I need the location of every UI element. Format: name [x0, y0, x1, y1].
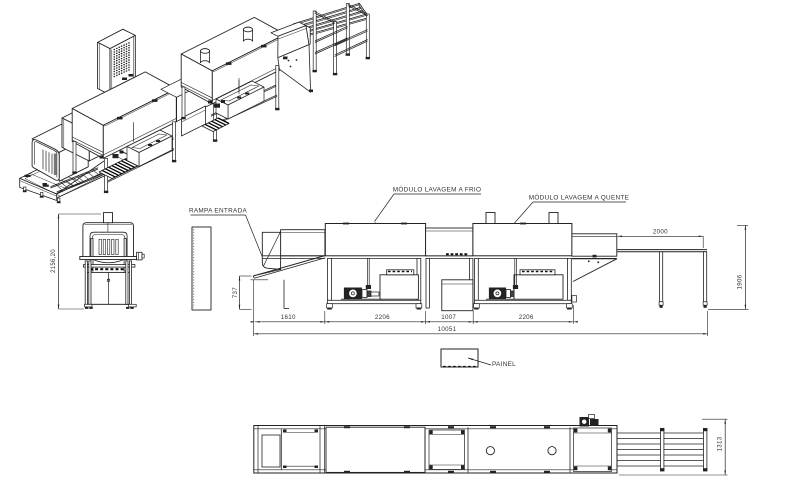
- svg-text:PAINEL: PAINEL: [492, 361, 516, 368]
- svg-text:RAMPA ENTRADA: RAMPA ENTRADA: [189, 208, 248, 215]
- svg-text:737: 737: [232, 287, 239, 298]
- svg-text:1610: 1610: [281, 314, 296, 321]
- svg-text:2156,20: 2156,20: [51, 249, 57, 273]
- svg-text:2206: 2206: [519, 314, 534, 321]
- svg-text:MÓDULO LAVAGEM A FRIO: MÓDULO LAVAGEM A FRIO: [393, 185, 481, 194]
- svg-text:1007: 1007: [441, 314, 456, 321]
- svg-text:MÓDULO LAVAGEM A QUENTE: MÓDULO LAVAGEM A QUENTE: [529, 193, 629, 202]
- svg-text:10051: 10051: [438, 326, 457, 333]
- svg-text:2000: 2000: [653, 228, 668, 235]
- svg-text:1906: 1906: [737, 274, 744, 289]
- svg-text:2206: 2206: [375, 314, 390, 321]
- svg-text:1313: 1313: [717, 436, 724, 451]
